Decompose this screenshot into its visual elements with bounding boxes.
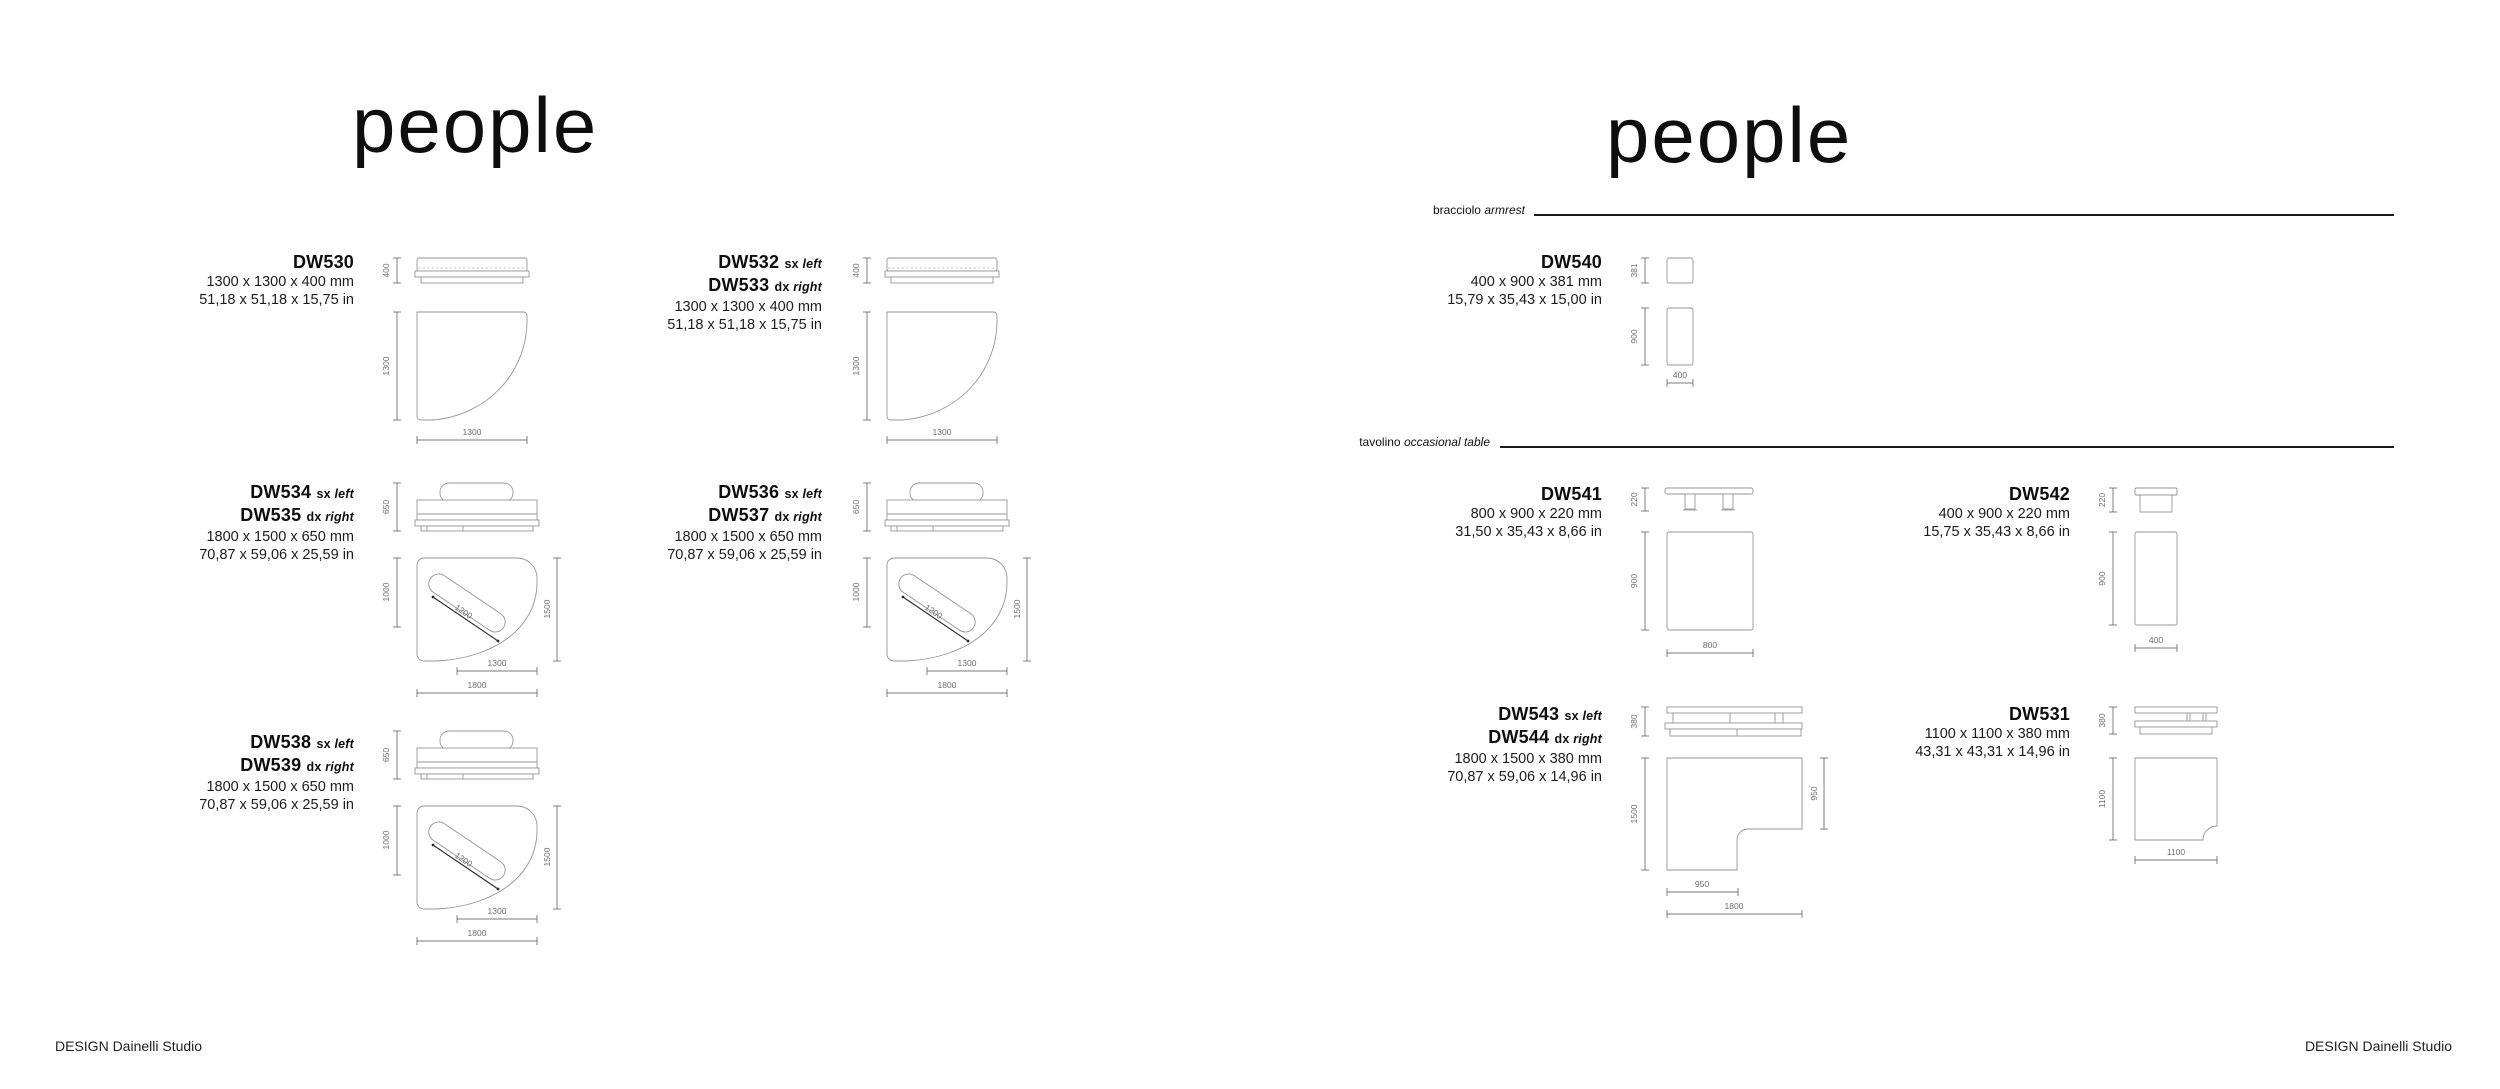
- dimension-line-width: 800: [1667, 640, 1753, 657]
- dw536-plan-view: [887, 558, 1007, 661]
- product-code-line: DW532 sx left: [560, 252, 822, 275]
- product-info-dw542: DW542 400 x 900 x 220 mm 15,75 x 35,43 x…: [1864, 484, 2070, 541]
- dim-label-height: 650: [851, 500, 861, 514]
- dim-label-height: 650: [381, 500, 391, 514]
- product-dims-in: 70,87 x 59,06 x 25,59 in: [148, 546, 354, 564]
- dimension-line-height: 650: [381, 483, 401, 531]
- product-code-line: DW541: [1396, 484, 1602, 505]
- product-dims-mm: 1800 x 1500 x 650 mm: [148, 528, 354, 546]
- dw542-front-view: [2135, 488, 2177, 512]
- dimension-line-side: 1300: [381, 312, 401, 420]
- dimension-line-bottom2: 1800: [887, 680, 1007, 697]
- dim-label-height: 381: [1629, 263, 1639, 277]
- dimension-line-right: 1500: [1012, 558, 1031, 661]
- dim-label-side: 1100: [2097, 790, 2107, 809]
- product-info-dw532: DW532 sx left DW533 dx right 1300 x 1300…: [560, 252, 822, 334]
- dw534-front-view: [415, 483, 539, 531]
- product-dims-mm: 1800 x 1500 x 650 mm: [148, 778, 354, 796]
- dw530-front-view: [415, 258, 529, 283]
- product-code-line: DW537 dx right: [560, 505, 822, 528]
- product-code: DW544: [1488, 727, 1549, 747]
- product-dims-in: 43,31 x 43,31 x 14,96 in: [1864, 743, 2070, 761]
- section-divider-table: [1500, 446, 2394, 448]
- dimension-line-height: 220: [1629, 488, 1649, 511]
- dim-label-left: 1000: [851, 582, 861, 601]
- product-code: DW536: [718, 482, 779, 502]
- product-code-line: DW535 dx right: [148, 505, 354, 528]
- dim-label-width: 800: [1703, 640, 1717, 650]
- product-info-dw543: DW543 sx left DW544 dx right 1800 x 1500…: [1320, 704, 1602, 786]
- section-header-armrest: bracciolo armrest: [1200, 203, 1525, 217]
- product-dims-mm: 1300 x 1300 x 400 mm: [148, 273, 354, 291]
- dw542-plan-view: [2135, 532, 2177, 625]
- dimension-line-left: 1000: [381, 558, 401, 627]
- product-code-line: DW542: [1864, 484, 2070, 505]
- product-info-dw538: DW538 sx left DW539 dx right 1800 x 1500…: [148, 732, 354, 814]
- dw538-front-view: [415, 731, 539, 779]
- variant-label: sx left: [316, 737, 354, 751]
- product-dims-in: 70,87 x 59,06 x 25,59 in: [560, 546, 822, 564]
- product-code: DW535: [240, 505, 301, 525]
- product-code: DW533: [708, 275, 769, 295]
- designer-credit-right: DESIGN Dainelli Studio: [2146, 1038, 2452, 1054]
- product-code-line: DW534 sx left: [148, 482, 354, 505]
- dimension-line-bottom2: 1800: [417, 680, 537, 697]
- product-code-line: DW543 sx left: [1320, 704, 1602, 727]
- dim-label-width: 400: [1673, 370, 1687, 380]
- dw543-plan-view: [1667, 758, 1802, 870]
- designer-credit-left: DESIGN Dainelli Studio: [55, 1038, 202, 1054]
- product-code-line: DW544 dx right: [1320, 727, 1602, 750]
- dimension-line-height: 400: [381, 258, 401, 283]
- product-info-dw540: DW540 400 x 900 x 381 mm 15,79 x 35,43 x…: [1396, 252, 1602, 309]
- dim-label-side: 900: [1629, 574, 1639, 588]
- variant-label: dx right: [775, 280, 822, 294]
- product-info-dw530: DW530 1300 x 1300 x 400 mm 51,18 x 51,18…: [148, 252, 354, 309]
- product-dims-in: 70,87 x 59,06 x 25,59 in: [148, 796, 354, 814]
- dw531-plan-view: [2135, 758, 2217, 840]
- dim-label-bottom1: 1300: [488, 906, 507, 916]
- dimension-line-bottom2: 1800: [417, 928, 537, 945]
- dimension-line-bottom1: 1300: [457, 658, 537, 675]
- variant-label: dx right: [307, 510, 354, 524]
- product-code-line: DW539 dx right: [148, 755, 354, 778]
- product-code: DW531: [2009, 704, 2070, 724]
- dim-label-height: 400: [381, 263, 391, 277]
- dw541-drawing: 220 900 800: [1620, 480, 1810, 665]
- dimension-line-height: 220: [2097, 488, 2117, 512]
- product-dims-mm: 400 x 900 x 220 mm: [1864, 505, 2070, 523]
- dimension-line-left: 1500: [1629, 758, 1649, 870]
- dw540-front-view: [1667, 258, 1693, 283]
- dim-label-bottom2: 1800: [468, 928, 487, 938]
- product-code-line: DW540: [1396, 252, 1602, 273]
- dim-label-right: 1500: [542, 599, 552, 618]
- dw536-front-view: [885, 483, 1009, 531]
- variant-label: sx left: [316, 487, 354, 501]
- product-code: DW532: [718, 252, 779, 272]
- product-code-line: DW533 dx right: [560, 275, 822, 298]
- dim-label-height: 400: [851, 263, 861, 277]
- dimension-line-left: 1000: [851, 558, 871, 627]
- dim-label-height: 220: [2097, 493, 2107, 507]
- product-dims-in: 51,18 x 51,18 x 15,75 in: [560, 316, 822, 334]
- dw530-drawing: 400 1300 1300: [380, 250, 550, 450]
- variant-label: dx right: [775, 510, 822, 524]
- dim-label-right: 1500: [542, 847, 552, 866]
- dim-label-width: 400: [2149, 635, 2163, 645]
- dim-label-height: 380: [2097, 713, 2107, 727]
- product-dims-in: 31,50 x 35,43 x 8,66 in: [1396, 523, 1602, 541]
- dw543-drawing: 380 1500 950 950 1800: [1620, 700, 1850, 925]
- dimension-line-width: 400: [1667, 370, 1693, 387]
- dw543-front-view: [1665, 707, 1802, 736]
- product-code-line: DW530: [148, 252, 354, 273]
- dim-label-left: 1500: [1629, 804, 1639, 823]
- dimension-line-height: 400: [851, 258, 871, 283]
- product-dims-in: 15,75 x 35,43 x 8,66 in: [1864, 523, 2070, 541]
- dimension-line-side: 1300: [851, 312, 871, 420]
- dim-label-width: 1100: [2167, 847, 2186, 857]
- dimension-line-side: 1100: [2097, 758, 2117, 840]
- product-code: DW541: [1541, 484, 1602, 504]
- product-info-dw534: DW534 sx left DW535 dx right 1800 x 1500…: [148, 482, 354, 564]
- dw542-drawing: 220 900 400: [2090, 480, 2230, 660]
- dimension-line-side: 900: [2097, 532, 2117, 625]
- product-code: DW538: [250, 732, 311, 752]
- product-code: DW540: [1541, 252, 1602, 272]
- product-code: DW543: [1498, 704, 1559, 724]
- dimension-line-height: 381: [1629, 258, 1649, 283]
- dimension-line-height: 650: [851, 483, 871, 531]
- dimension-line-width: 1300: [417, 427, 527, 444]
- product-dims-mm: 1300 x 1300 x 400 mm: [560, 298, 822, 316]
- dim-label-width: 1300: [933, 427, 952, 437]
- product-dims-mm: 1800 x 1500 x 650 mm: [560, 528, 822, 546]
- dw540-drawing: 381 900 400: [1620, 250, 1740, 395]
- dw538-drawing: 650 1200 1000 1500 1300 1800: [380, 726, 610, 956]
- dimension-line-width: 400: [2135, 635, 2177, 652]
- dimension-line-bottom2: 1800: [1667, 901, 1802, 918]
- section-header-table: tavolino occasional table: [1165, 435, 1490, 449]
- variant-label: dx right: [307, 760, 354, 774]
- dimension-line-bottom1: 1300: [927, 658, 1007, 675]
- dw532-plan-view: [887, 312, 997, 420]
- section-label-en: armrest: [1484, 203, 1525, 217]
- product-dims-mm: 1800 x 1500 x 380 mm: [1320, 750, 1602, 768]
- dimension-line-width: 1300: [887, 427, 997, 444]
- dimension-line-height: 380: [2097, 707, 2117, 734]
- variant-label: sx left: [784, 257, 822, 271]
- dim-label-bottom1: 1300: [958, 658, 977, 668]
- dim-label-left: 1000: [381, 582, 391, 601]
- dim-label-bottom2: 1800: [938, 680, 957, 690]
- dimension-line-bottom1: 950: [1667, 879, 1738, 896]
- page-title-left: people: [352, 80, 598, 171]
- product-dims-in: 70,87 x 59,06 x 14,96 in: [1320, 768, 1602, 786]
- product-dims-mm: 400 x 900 x 381 mm: [1396, 273, 1602, 291]
- dim-label-bottom1: 950: [1695, 879, 1709, 889]
- product-code: DW534: [250, 482, 311, 502]
- variant-label: sx left: [1564, 709, 1602, 723]
- dim-label-right: 1500: [1012, 599, 1022, 618]
- catalog-spread: people DW530 1300 x 1300 x 400 mm 51,18 …: [0, 0, 2500, 1089]
- dim-label-width: 1300: [463, 427, 482, 437]
- dim-label-height: 380: [1629, 714, 1639, 728]
- dw541-front-view: [1665, 488, 1753, 510]
- section-label-en: occasional table: [1404, 435, 1490, 449]
- section-label-it: tavolino: [1359, 435, 1400, 449]
- dw541-plan-view: [1667, 532, 1753, 630]
- product-dims-mm: 800 x 900 x 220 mm: [1396, 505, 1602, 523]
- product-dims-in: 15,79 x 35,43 x 15,00 in: [1396, 291, 1602, 309]
- product-code: DW537: [708, 505, 769, 525]
- dimension-line-left: 1000: [381, 806, 401, 875]
- dw532-drawing: 400 1300 1300: [850, 250, 1020, 450]
- dim-label-side: 900: [2097, 571, 2107, 585]
- dim-label-side: 1300: [851, 356, 861, 375]
- dim-label-height: 220: [1629, 492, 1639, 506]
- dim-label-side: 1300: [381, 356, 391, 375]
- dimension-line-side: 900: [1629, 532, 1649, 630]
- variant-label: sx left: [784, 487, 822, 501]
- product-code-line: DW531: [1864, 704, 2070, 725]
- product-info-dw536: DW536 sx left DW537 dx right 1800 x 1500…: [560, 482, 822, 564]
- product-code: DW530: [293, 252, 354, 272]
- dw536-drawing: 650 1200 1000 1500 1300 1800: [850, 478, 1080, 708]
- dim-label-bottom2: 1800: [1725, 901, 1744, 911]
- product-dims-in: 51,18 x 51,18 x 15,75 in: [148, 291, 354, 309]
- dw532-front-view: [885, 258, 999, 283]
- product-info-dw531: DW531 1100 x 1100 x 380 mm 43,31 x 43,31…: [1864, 704, 2070, 761]
- dim-label-height: 650: [381, 748, 391, 762]
- variant-label: dx right: [1555, 732, 1602, 746]
- dimension-line-side: 900: [1629, 308, 1649, 365]
- dimension-line-height: 380: [1629, 707, 1649, 736]
- dw531-front-view: [2135, 707, 2217, 734]
- dimension-line-width: 1100: [2135, 847, 2217, 864]
- product-code-line: DW536 sx left: [560, 482, 822, 505]
- dimension-line-bottom1: 1300: [457, 906, 537, 923]
- dw540-plan-view: [1667, 308, 1693, 365]
- dw531-drawing: 380 1100 1100: [2090, 700, 2270, 875]
- product-code: DW539: [240, 755, 301, 775]
- product-code: DW542: [2009, 484, 2070, 504]
- dimension-line-height: 650: [381, 731, 401, 779]
- dw538-plan-view: [417, 806, 537, 909]
- product-dims-mm: 1100 x 1100 x 380 mm: [1864, 725, 2070, 743]
- dim-label-side: 900: [1629, 329, 1639, 343]
- product-code-line: DW538 sx left: [148, 732, 354, 755]
- dim-label-left: 1000: [381, 830, 391, 849]
- section-label-it: bracciolo: [1433, 203, 1481, 217]
- dim-label-right: 950: [1809, 786, 1819, 800]
- section-divider-armrest: [1534, 214, 2394, 216]
- product-info-dw541: DW541 800 x 900 x 220 mm 31,50 x 35,43 x…: [1396, 484, 1602, 541]
- dimension-line-right: 1500: [542, 806, 561, 909]
- dim-label-bottom2: 1800: [468, 680, 487, 690]
- dim-label-bottom1: 1300: [488, 658, 507, 668]
- dw530-plan-view: [417, 312, 527, 420]
- dw534-plan-view: [417, 558, 537, 661]
- dimension-line-right: 1500: [542, 558, 561, 661]
- page-title-right: people: [1606, 90, 1852, 181]
- dimension-line-right: 950: [1809, 758, 1828, 829]
